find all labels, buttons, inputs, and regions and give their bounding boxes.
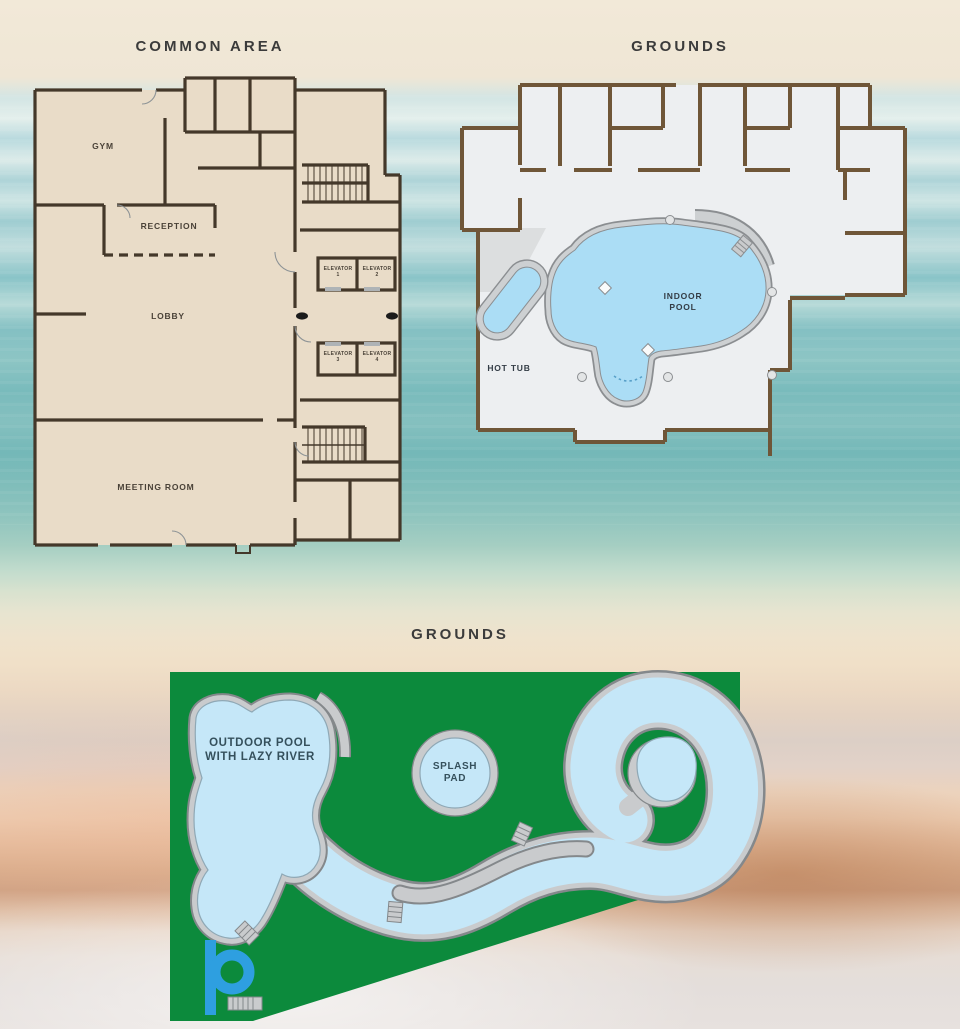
elevator-4-label: ELEVATOR 4 — [360, 351, 394, 363]
gym-label: GYM — [63, 141, 143, 152]
splash-pad-label: SPLASH PAD — [405, 761, 505, 785]
grounds-indoor-floorplan — [450, 70, 920, 460]
island-pool — [637, 737, 696, 801]
lobby-label: LOBBY — [118, 311, 218, 322]
hot-tub-label: HOT TUB — [459, 363, 559, 374]
meeting-room-label: MEETING ROOM — [86, 482, 226, 493]
grounds-outdoor-map — [150, 625, 770, 1029]
indoor-pool-label: INDOOR POOL — [633, 291, 733, 312]
river-ladder-2 — [387, 901, 403, 922]
common-area-title: COMMON AREA — [20, 38, 400, 55]
elevator-2-label: ELEVATOR 2 — [360, 266, 394, 278]
outdoor-pool-label: OUTDOOR POOL WITH LAZY RIVER — [178, 737, 342, 764]
grounds-indoor-title: GROUNDS — [450, 38, 910, 55]
resort-map-page: { "titles": { "common_area": "COMMON ARE… — [0, 0, 960, 1029]
reception-label: RECEPTION — [119, 221, 219, 232]
elevator-3-label: ELEVATOR 3 — [321, 351, 355, 363]
elevator-1-label: ELEVATOR 1 — [321, 266, 355, 278]
